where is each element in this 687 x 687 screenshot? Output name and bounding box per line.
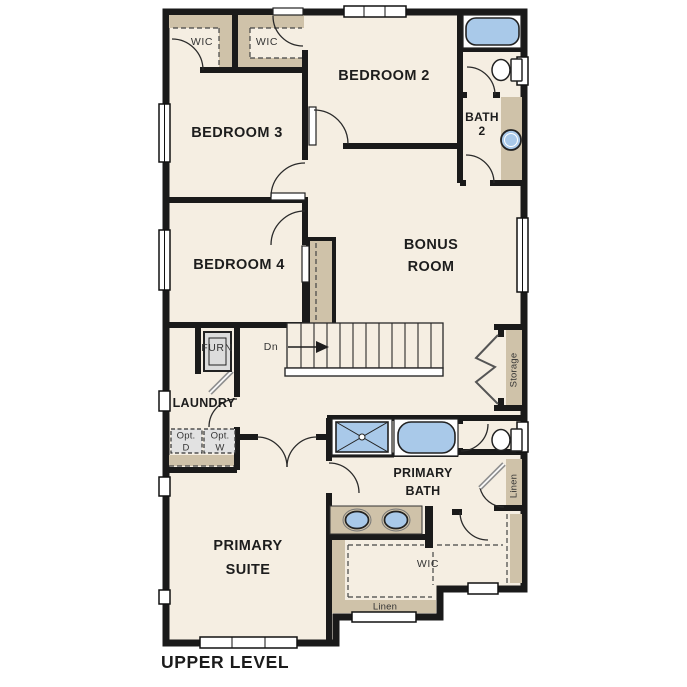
room-label-wic-primary: WIC bbox=[417, 558, 439, 570]
room-label-linen-right: Linen bbox=[509, 474, 520, 498]
room-label-bonus-room-line1: BONUS bbox=[404, 237, 458, 253]
room-label-bedroom-3: BEDROOM 3 bbox=[191, 125, 282, 141]
floorplan-page: WIC WIC BEDROOM 2 BATH 2 BEDROOM 3 BEDRO… bbox=[0, 0, 687, 687]
room-label-bonus-room-line2: ROOM bbox=[408, 259, 455, 275]
room-label-furnace: FURN bbox=[201, 342, 233, 354]
bath2-sink-icon bbox=[501, 130, 521, 150]
shower-icon bbox=[332, 419, 392, 455]
room-label-linen-bottom: Linen bbox=[373, 602, 397, 613]
floorplan-drawing bbox=[0, 0, 687, 687]
label-opt-washer-line1: Opt. bbox=[211, 431, 230, 442]
label-opt-dryer-line1: Opt. bbox=[177, 431, 196, 442]
page-title: UPPER LEVEL bbox=[161, 652, 289, 673]
label-opt-dryer-line2: D bbox=[182, 443, 189, 454]
room-label-primary-bath-line2: BATH bbox=[406, 484, 441, 498]
bath2-toilet-icon bbox=[492, 59, 522, 81]
primary-tub-icon bbox=[394, 419, 458, 456]
room-label-laundry: LAUNDRY bbox=[173, 396, 236, 410]
room-label-bath-2-line1: BATH bbox=[465, 110, 499, 124]
room-label-bath-2-line2: 2 bbox=[479, 124, 486, 138]
room-label-wic-top-mid: WIC bbox=[256, 36, 278, 48]
room-label-wic-top-left: WIC bbox=[191, 36, 213, 48]
chase bbox=[308, 239, 334, 325]
stairs-dn-label: Dn bbox=[264, 341, 279, 353]
bath2-tub-icon bbox=[463, 15, 521, 48]
room-label-primary-suite-line1: PRIMARY bbox=[213, 538, 282, 554]
primary-toilet-icon bbox=[492, 429, 522, 451]
stair-rail bbox=[285, 368, 443, 376]
room-label-bedroom-4: BEDROOM 4 bbox=[193, 257, 284, 273]
stairs bbox=[285, 323, 443, 376]
room-label-primary-bath-line1: PRIMARY bbox=[393, 466, 452, 480]
room-label-storage: Storage bbox=[509, 353, 520, 388]
vanity-sinks-icon bbox=[330, 506, 422, 534]
room-label-bedroom-2: BEDROOM 2 bbox=[338, 68, 429, 84]
label-opt-washer-line2: W bbox=[215, 443, 224, 454]
room-label-primary-suite-line2: SUITE bbox=[226, 562, 271, 578]
